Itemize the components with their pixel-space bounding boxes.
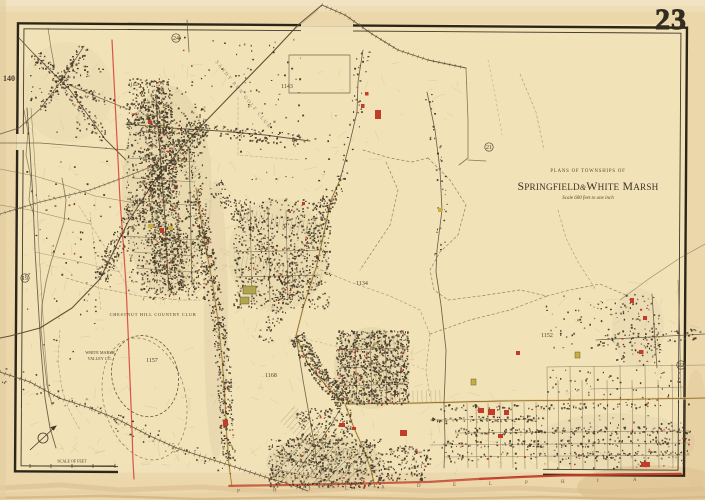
svg-text:L: L bbox=[345, 486, 348, 491]
svg-text:23: 23 bbox=[655, 3, 687, 36]
svg-text:P: P bbox=[237, 490, 240, 495]
svg-text:1150: 1150 bbox=[145, 130, 155, 135]
svg-text:1143: 1143 bbox=[281, 84, 293, 90]
svg-text:L: L bbox=[489, 482, 492, 487]
svg-text:H: H bbox=[561, 480, 565, 485]
svg-text:A: A bbox=[381, 485, 385, 490]
svg-text:VALLEY C.C.: VALLEY C.C. bbox=[88, 356, 113, 361]
svg-text:A: A bbox=[633, 478, 637, 483]
svg-text:Scale 600 feet to one inch: Scale 600 feet to one inch bbox=[562, 196, 614, 201]
svg-text:24: 24 bbox=[173, 36, 179, 42]
svg-text:1157: 1157 bbox=[146, 358, 158, 364]
svg-text:1162: 1162 bbox=[128, 83, 138, 88]
svg-text:CHESTNUT HILL COUNTRY CLUB: CHESTNUT HILL COUNTRY CLUB bbox=[110, 312, 197, 317]
svg-text:SCALE OF FEET: SCALE OF FEET bbox=[57, 459, 87, 464]
svg-text:SPRINGFIELD&WHITE MARSH: SPRINGFIELD&WHITE MARSH bbox=[517, 179, 658, 193]
svg-text:H: H bbox=[273, 488, 277, 493]
svg-text:22: 22 bbox=[678, 363, 684, 369]
svg-text:1168: 1168 bbox=[265, 373, 277, 379]
svg-text:1134: 1134 bbox=[356, 281, 368, 287]
svg-text:19: 19 bbox=[22, 276, 28, 282]
svg-text:140: 140 bbox=[3, 74, 15, 83]
svg-text:1152: 1152 bbox=[541, 333, 553, 339]
svg-text:WHITE MARSH: WHITE MARSH bbox=[85, 350, 114, 355]
svg-text:P: P bbox=[525, 481, 528, 486]
svg-text:21: 21 bbox=[486, 145, 492, 151]
svg-text:E: E bbox=[453, 483, 456, 488]
svg-text:D: D bbox=[417, 484, 421, 489]
svg-text:1160: 1160 bbox=[134, 199, 144, 204]
svg-text:PLANS OF TOWNSHIPS OF: PLANS OF TOWNSHIPS OF bbox=[550, 169, 625, 174]
